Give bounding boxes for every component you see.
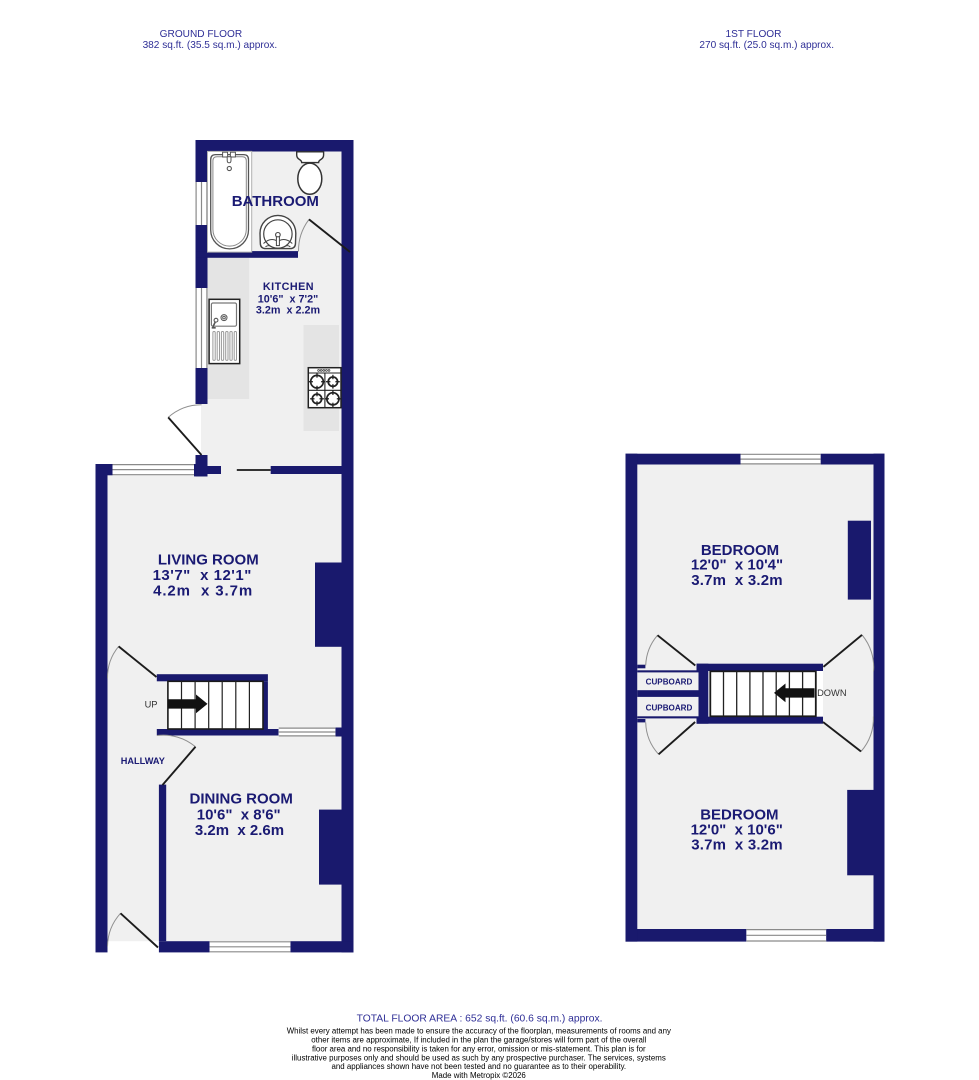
svg-text:Whilst every attempt has been: Whilst every attempt has been made to en… <box>287 1027 671 1036</box>
svg-text:4.2m x 3.7m: 4.2m x 3.7m <box>153 583 253 600</box>
svg-text:illustrative purposes only and: illustrative purposes only and should be… <box>292 1053 666 1062</box>
svg-text:13'7" x 12'1": 13'7" x 12'1" <box>153 567 252 584</box>
svg-text:other items are approximate, I: other items are approximate, If included… <box>311 1036 646 1045</box>
svg-text:3.2m x 2.6m: 3.2m x 2.6m <box>195 822 284 839</box>
svg-text:KITCHEN: KITCHEN <box>263 281 314 293</box>
svg-text:CUPBOARD: CUPBOARD <box>646 678 693 687</box>
svg-text:and appliances shown have not: and appliances shown have not been teste… <box>331 1062 626 1071</box>
svg-text:Made with Metropix ©2026: Made with Metropix ©2026 <box>432 1071 527 1080</box>
svg-text:floor area and no responsibili: floor area and no responsibility is take… <box>312 1044 646 1053</box>
svg-text:GROUND FLOOR: GROUND FLOOR <box>160 29 242 40</box>
svg-text:1ST FLOOR: 1ST FLOOR <box>726 29 782 40</box>
svg-text:270 sq.ft. (25.0 sq.m.) approx: 270 sq.ft. (25.0 sq.m.) approx. <box>699 40 834 51</box>
svg-text:DOWN: DOWN <box>817 688 846 698</box>
svg-text:3.7m x 3.2m: 3.7m x 3.2m <box>691 837 783 854</box>
svg-text:DINING ROOM: DINING ROOM <box>190 791 293 808</box>
svg-text:HALLWAY: HALLWAY <box>121 756 165 766</box>
svg-text:3.7m x 3.2m: 3.7m x 3.2m <box>691 572 783 589</box>
svg-text:382 sq.ft. (35.5 sq.m.) approx: 382 sq.ft. (35.5 sq.m.) approx. <box>143 40 278 51</box>
svg-text:TOTAL FLOOR AREA : 652 sq.ft.: TOTAL FLOOR AREA : 652 sq.ft. (60.6 sq.m… <box>357 1014 603 1025</box>
svg-text:CUPBOARD: CUPBOARD <box>646 704 693 713</box>
svg-text:10'6" x 8'6": 10'6" x 8'6" <box>197 807 281 824</box>
svg-text:BATHROOM: BATHROOM <box>232 193 319 210</box>
svg-text:UP: UP <box>145 699 158 709</box>
svg-text:3.2m x 2.2m: 3.2m x 2.2m <box>256 305 320 317</box>
